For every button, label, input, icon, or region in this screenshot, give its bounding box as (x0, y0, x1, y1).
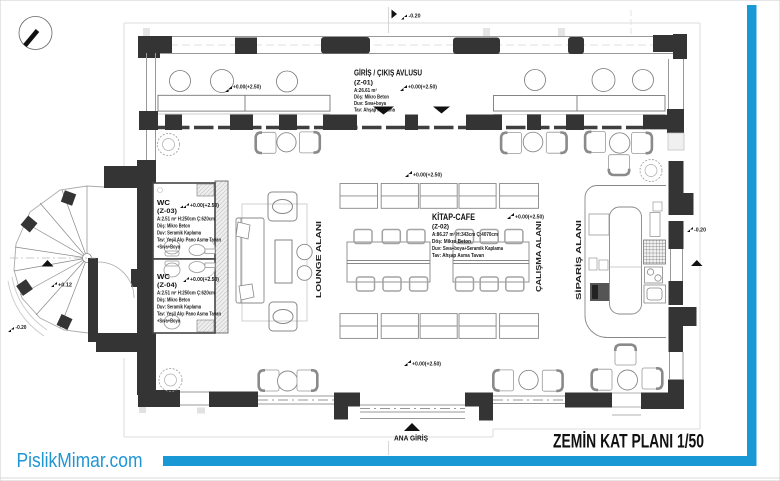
svg-text:Duv: Seramik Kaplama: Duv: Seramik Kaplama (157, 305, 201, 311)
svg-text:-0.20: -0.20 (694, 228, 706, 234)
svg-text:+0.00(+2.50): +0.00(+2.50) (413, 173, 442, 179)
svg-text:SİPARİŞ ALANI: SİPARİŞ ALANI (574, 220, 583, 300)
svg-text:Duv: Seramik Kaplama: Duv: Seramik Kaplama (157, 231, 201, 237)
svg-text:(Z-03): (Z-03) (157, 208, 177, 215)
svg-text:(Z-04): (Z-04) (157, 282, 177, 289)
svg-text:Duv: Sıva+boya: Duv: Sıva+boya (354, 101, 386, 107)
svg-text:Döş: Mikro Beton: Döş: Mikro Beton (432, 239, 471, 245)
svg-text:A:86.27 m² H:343cm Ç:4070cm: A:86.27 m² H:343cm Ç:4070cm (432, 232, 498, 238)
svg-text:PislikMimar.com: PislikMimar.com (17, 450, 143, 472)
svg-text:Döş: Mikro Beton: Döş: Mikro Beton (157, 224, 190, 230)
svg-text:-0.20: -0.20 (409, 14, 421, 20)
svg-text:+0.00(+2.50): +0.00(+2.50) (408, 85, 437, 91)
svg-text:ANA GİRİŞ: ANA GİRİŞ (394, 435, 428, 443)
svg-text:+0.12: +0.12 (58, 283, 72, 289)
svg-text:+0.00(+2.50): +0.00(+2.50) (233, 85, 261, 91)
svg-text:+0.00(+2.50): +0.00(+2.50) (190, 277, 219, 283)
svg-text:+0.00(+2.50): +0.00(+2.50) (412, 362, 441, 368)
svg-text:A:26.61 m²: A:26.61 m² (354, 88, 377, 94)
svg-text:-0.20: -0.20 (16, 325, 27, 331)
svg-text:A:2.51 m² H:250cm Ç:620cm: A:2.51 m² H:250cm Ç:620cm (157, 217, 215, 223)
svg-text:Duv: Sıva+boya+Seramik Kaplama: Duv: Sıva+boya+Seramik Kaplama (432, 246, 503, 252)
svg-text:ZEMİN KAT PLANI 1/50: ZEMİN KAT PLANI 1/50 (553, 432, 704, 453)
svg-text:+Sıva+Boya: +Sıva+Boya (157, 319, 180, 325)
svg-text:WC: WC (157, 274, 170, 281)
svg-text:(Z-01): (Z-01) (354, 80, 373, 87)
svg-text:Tav: Yeşil Alçı Pano Asma Tava: Tav: Yeşil Alçı Pano Asma Tavan (157, 238, 221, 244)
svg-text:KİTAP-CAFE: KİTAP-CAFE (432, 211, 475, 222)
svg-text:LOUNGE ALANI: LOUNGE ALANI (314, 221, 323, 298)
svg-text:Döş: Mikro Beton: Döş: Mikro Beton (157, 298, 190, 304)
svg-text:ÇALIŞMA ALANI: ÇALIŞMA ALANI (534, 221, 543, 292)
svg-text:A:2.51 m² H:250cm Ç:620cm: A:2.51 m² H:250cm Ç:620cm (157, 291, 215, 297)
svg-text:GİRİŞ / ÇIKIŞ AVLUSU: GİRİŞ / ÇIKIŞ AVLUSU (354, 68, 422, 78)
svg-text:+0.00(+2.50): +0.00(+2.50) (515, 215, 544, 221)
svg-text:WC: WC (157, 200, 170, 207)
svg-text:+Sıva+Boya: +Sıva+Boya (157, 245, 180, 251)
svg-text:+0.00(+2.50): +0.00(+2.50) (190, 203, 219, 209)
svg-text:(Z-02): (Z-02) (432, 224, 449, 231)
svg-text:Döş: Mikro Beton: Döş: Mikro Beton (354, 95, 389, 101)
svg-text:Tav: Yeşil Alçı Pano Asma Tava: Tav: Yeşil Alçı Pano Asma Tavan (157, 312, 221, 318)
svg-text:Tav: Ahşap Asma Tavan: Tav: Ahşap Asma Tavan (432, 253, 484, 259)
